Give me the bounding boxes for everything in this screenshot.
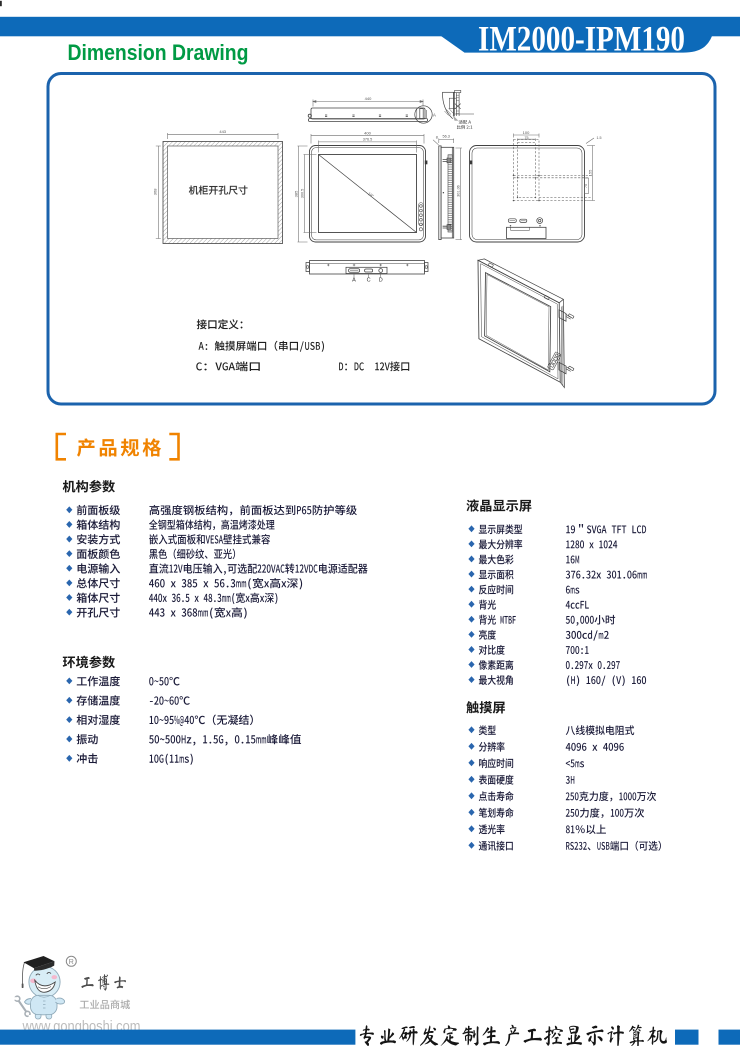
svg-text:8: 8: [436, 135, 438, 139]
svg-text:300.5: 300.5: [300, 189, 304, 199]
svg-text:100: 100: [523, 130, 530, 135]
svg-text:C: C: [367, 277, 371, 283]
svg-text:R: R: [69, 959, 74, 966]
svg-text:Dimension Drawing: Dimension Drawing: [68, 40, 249, 65]
svg-text:56.3: 56.3: [443, 135, 450, 139]
svg-text:400: 400: [364, 130, 371, 135]
svg-text:A: A: [352, 277, 356, 283]
svg-text:301.06: 301.06: [456, 185, 460, 197]
svg-text:D: D: [379, 277, 383, 283]
svg-text:75: 75: [525, 136, 529, 140]
svg-text:376.5: 376.5: [363, 138, 373, 142]
svg-text:1.5: 1.5: [597, 136, 602, 140]
svg-text:443: 443: [219, 129, 226, 134]
svg-text:385: 385: [293, 190, 298, 197]
svg-text:440: 440: [365, 96, 372, 101]
svg-text:155: 155: [587, 169, 592, 176]
svg-text:A: A: [433, 113, 436, 118]
svg-text:IM2000-IPM190: IM2000-IPM190: [478, 18, 685, 58]
svg-text:75: 75: [584, 184, 588, 188]
svg-text:368: 368: [153, 188, 158, 195]
